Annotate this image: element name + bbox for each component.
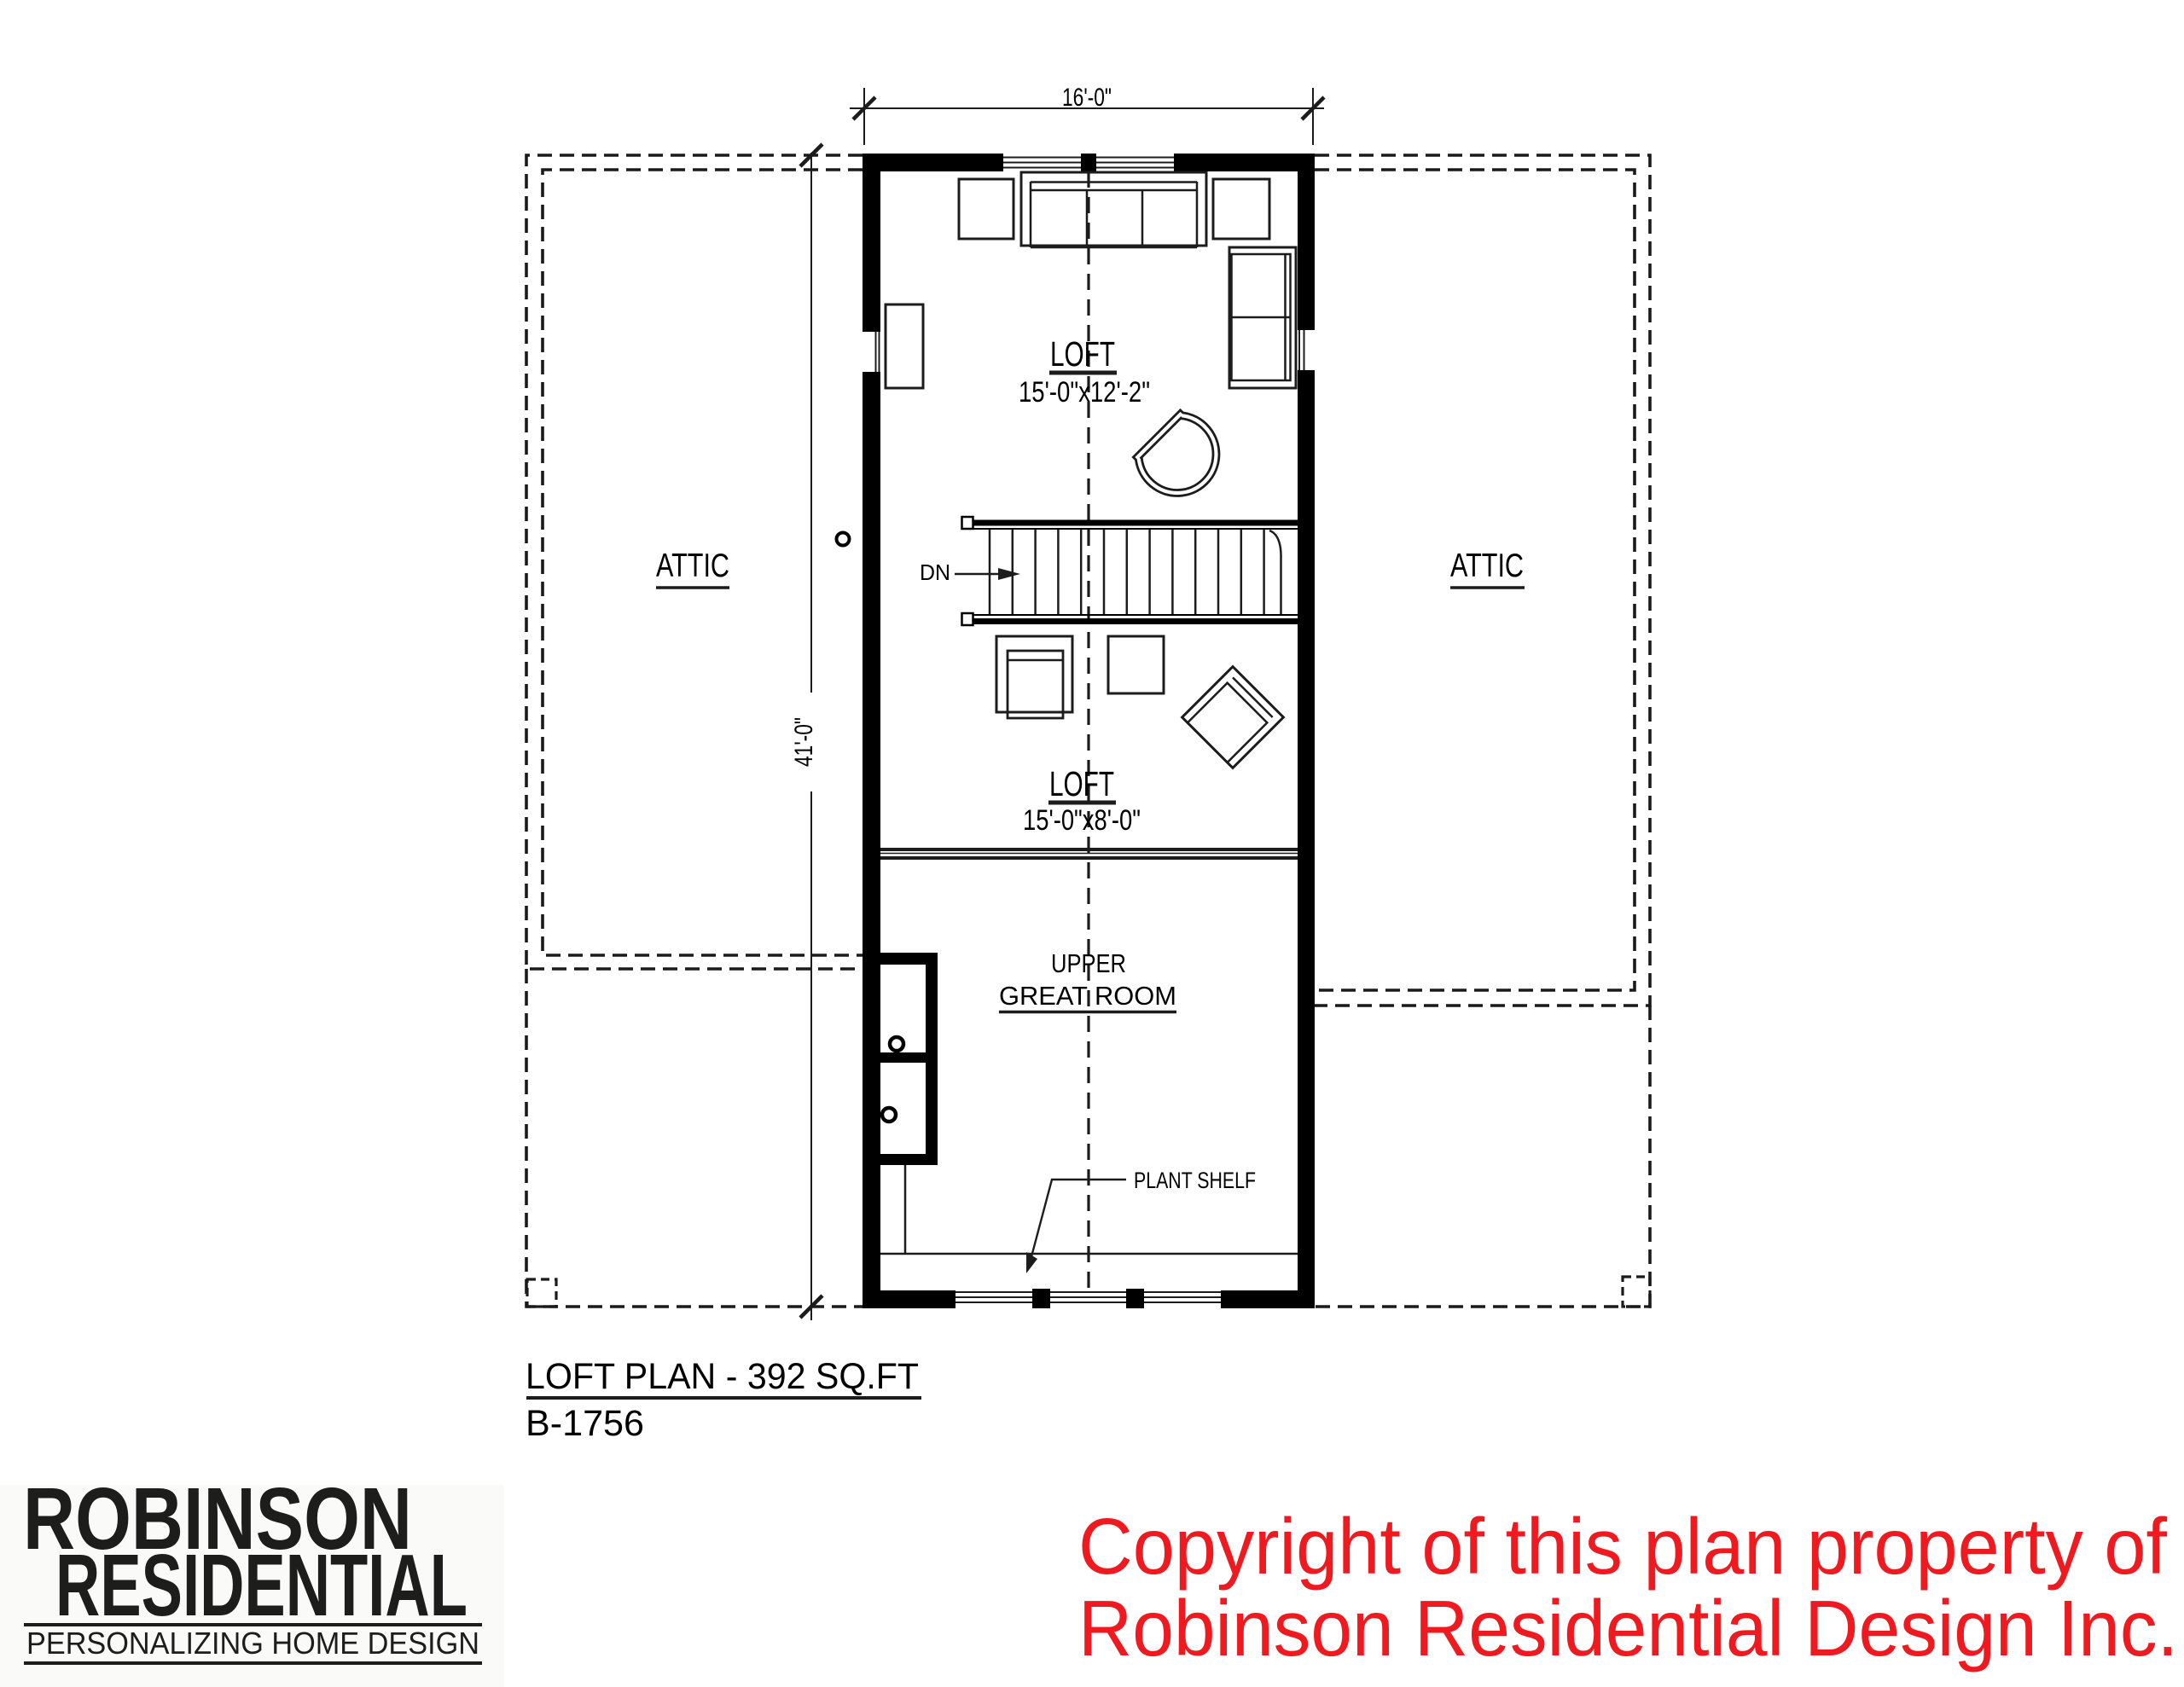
svg-text:LOFT: LOFT: [1050, 334, 1115, 374]
svg-text:LOFT PLAN - 392 SQ.FT: LOFT PLAN - 392 SQ.FT: [526, 1356, 919, 1397]
svg-text:PERSONALIZING HOME DESIGN: PERSONALIZING HOME DESIGN: [26, 1626, 479, 1661]
svg-text:Robinson Residential Design In: Robinson Residential Design Inc.: [1078, 1584, 2178, 1673]
svg-text:16'-0": 16'-0": [1062, 84, 1112, 112]
svg-text:B-1756: B-1756: [526, 1403, 644, 1444]
svg-text:RESIDENTIAL: RESIDENTIAL: [55, 1536, 468, 1634]
svg-text:ATTIC: ATTIC: [1450, 548, 1524, 584]
svg-text:15'-0"x8'-0": 15'-0"x8'-0": [1023, 804, 1141, 837]
svg-text:PLANT SHELF: PLANT SHELF: [1134, 1168, 1256, 1193]
svg-text:GREAT ROOM: GREAT ROOM: [999, 981, 1176, 1011]
svg-text:UPPER: UPPER: [1051, 948, 1126, 978]
svg-text:DN: DN: [920, 559, 950, 585]
svg-text:41'-0": 41'-0": [790, 717, 818, 767]
svg-text:Copyright of this plan propert: Copyright of this plan property of: [1078, 1502, 2167, 1591]
svg-text:LOFT: LOFT: [1049, 764, 1114, 803]
svg-text:ATTIC: ATTIC: [656, 548, 729, 584]
svg-text:15'-0"x12'-2": 15'-0"x12'-2": [1019, 376, 1150, 409]
